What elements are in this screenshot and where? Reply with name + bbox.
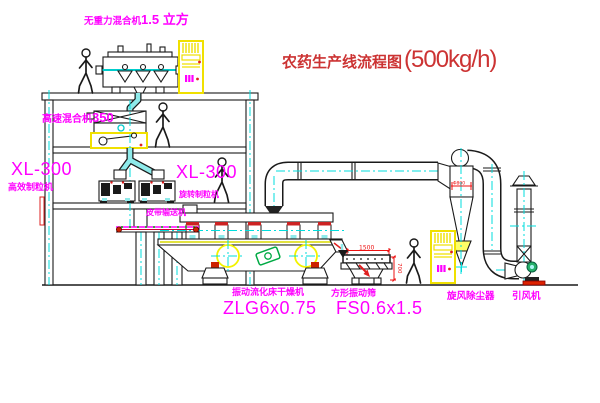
vibrating-screen: 1500 700 — [338, 244, 402, 284]
worker-figure-ground — [407, 239, 421, 283]
worker-figure-roof — [79, 49, 93, 93]
granulator-left-model: XL-300 — [11, 160, 72, 178]
screen-height-dim: 700 — [396, 263, 402, 274]
high-speed-mixer-label: 高速混合机350 — [42, 111, 114, 125]
screen-length-dim: 1500 — [359, 245, 374, 252]
cyclone-label: 旋风除尘器 — [447, 292, 495, 302]
gravity-mixer-label: 无重力混合机1.5 立方 — [84, 13, 189, 27]
control-cabinet-top — [179, 41, 203, 93]
hose-cabinet — [40, 197, 44, 225]
granulator-left-name: 高效制粒机 — [8, 183, 53, 193]
granulator-right-name: 旋转制粒机 — [179, 191, 219, 200]
cyclone-dia-dim: Φ800 — [453, 181, 465, 187]
control-cabinet-ground — [431, 231, 455, 283]
gravity-free-mixer — [96, 44, 186, 93]
granulator-left-machine — [99, 181, 135, 203]
granulator-right-hopper — [152, 170, 164, 179]
diagram-title: 农药生产线流程图 (500kg/h) — [282, 46, 496, 74]
granulator-right-machine — [139, 181, 175, 203]
granulator-right-model: XL-300 — [176, 163, 237, 181]
worker-figure-floor2 — [156, 103, 170, 147]
induced-draft-fan — [505, 262, 545, 285]
cad-flow-diagram: 1500 700 Φ800 — [0, 0, 600, 403]
exhaust-duct — [265, 163, 450, 219]
cyclone-outlet-duct — [467, 159, 520, 270]
granulator-left-hopper — [114, 170, 126, 179]
screen-model: FS0.6x1.5 — [336, 299, 423, 317]
belt-conveyor-label: 皮带输送机 — [146, 209, 186, 218]
dryer-model: ZLG6x0.75 — [223, 299, 317, 317]
dryer-label: 振动流化床干燥机 — [232, 288, 304, 298]
title-text: 农药生产线流程图 — [282, 51, 402, 72]
title-capacity: (500kg/h) — [404, 46, 496, 74]
fan-label: 引风机 — [512, 292, 541, 302]
